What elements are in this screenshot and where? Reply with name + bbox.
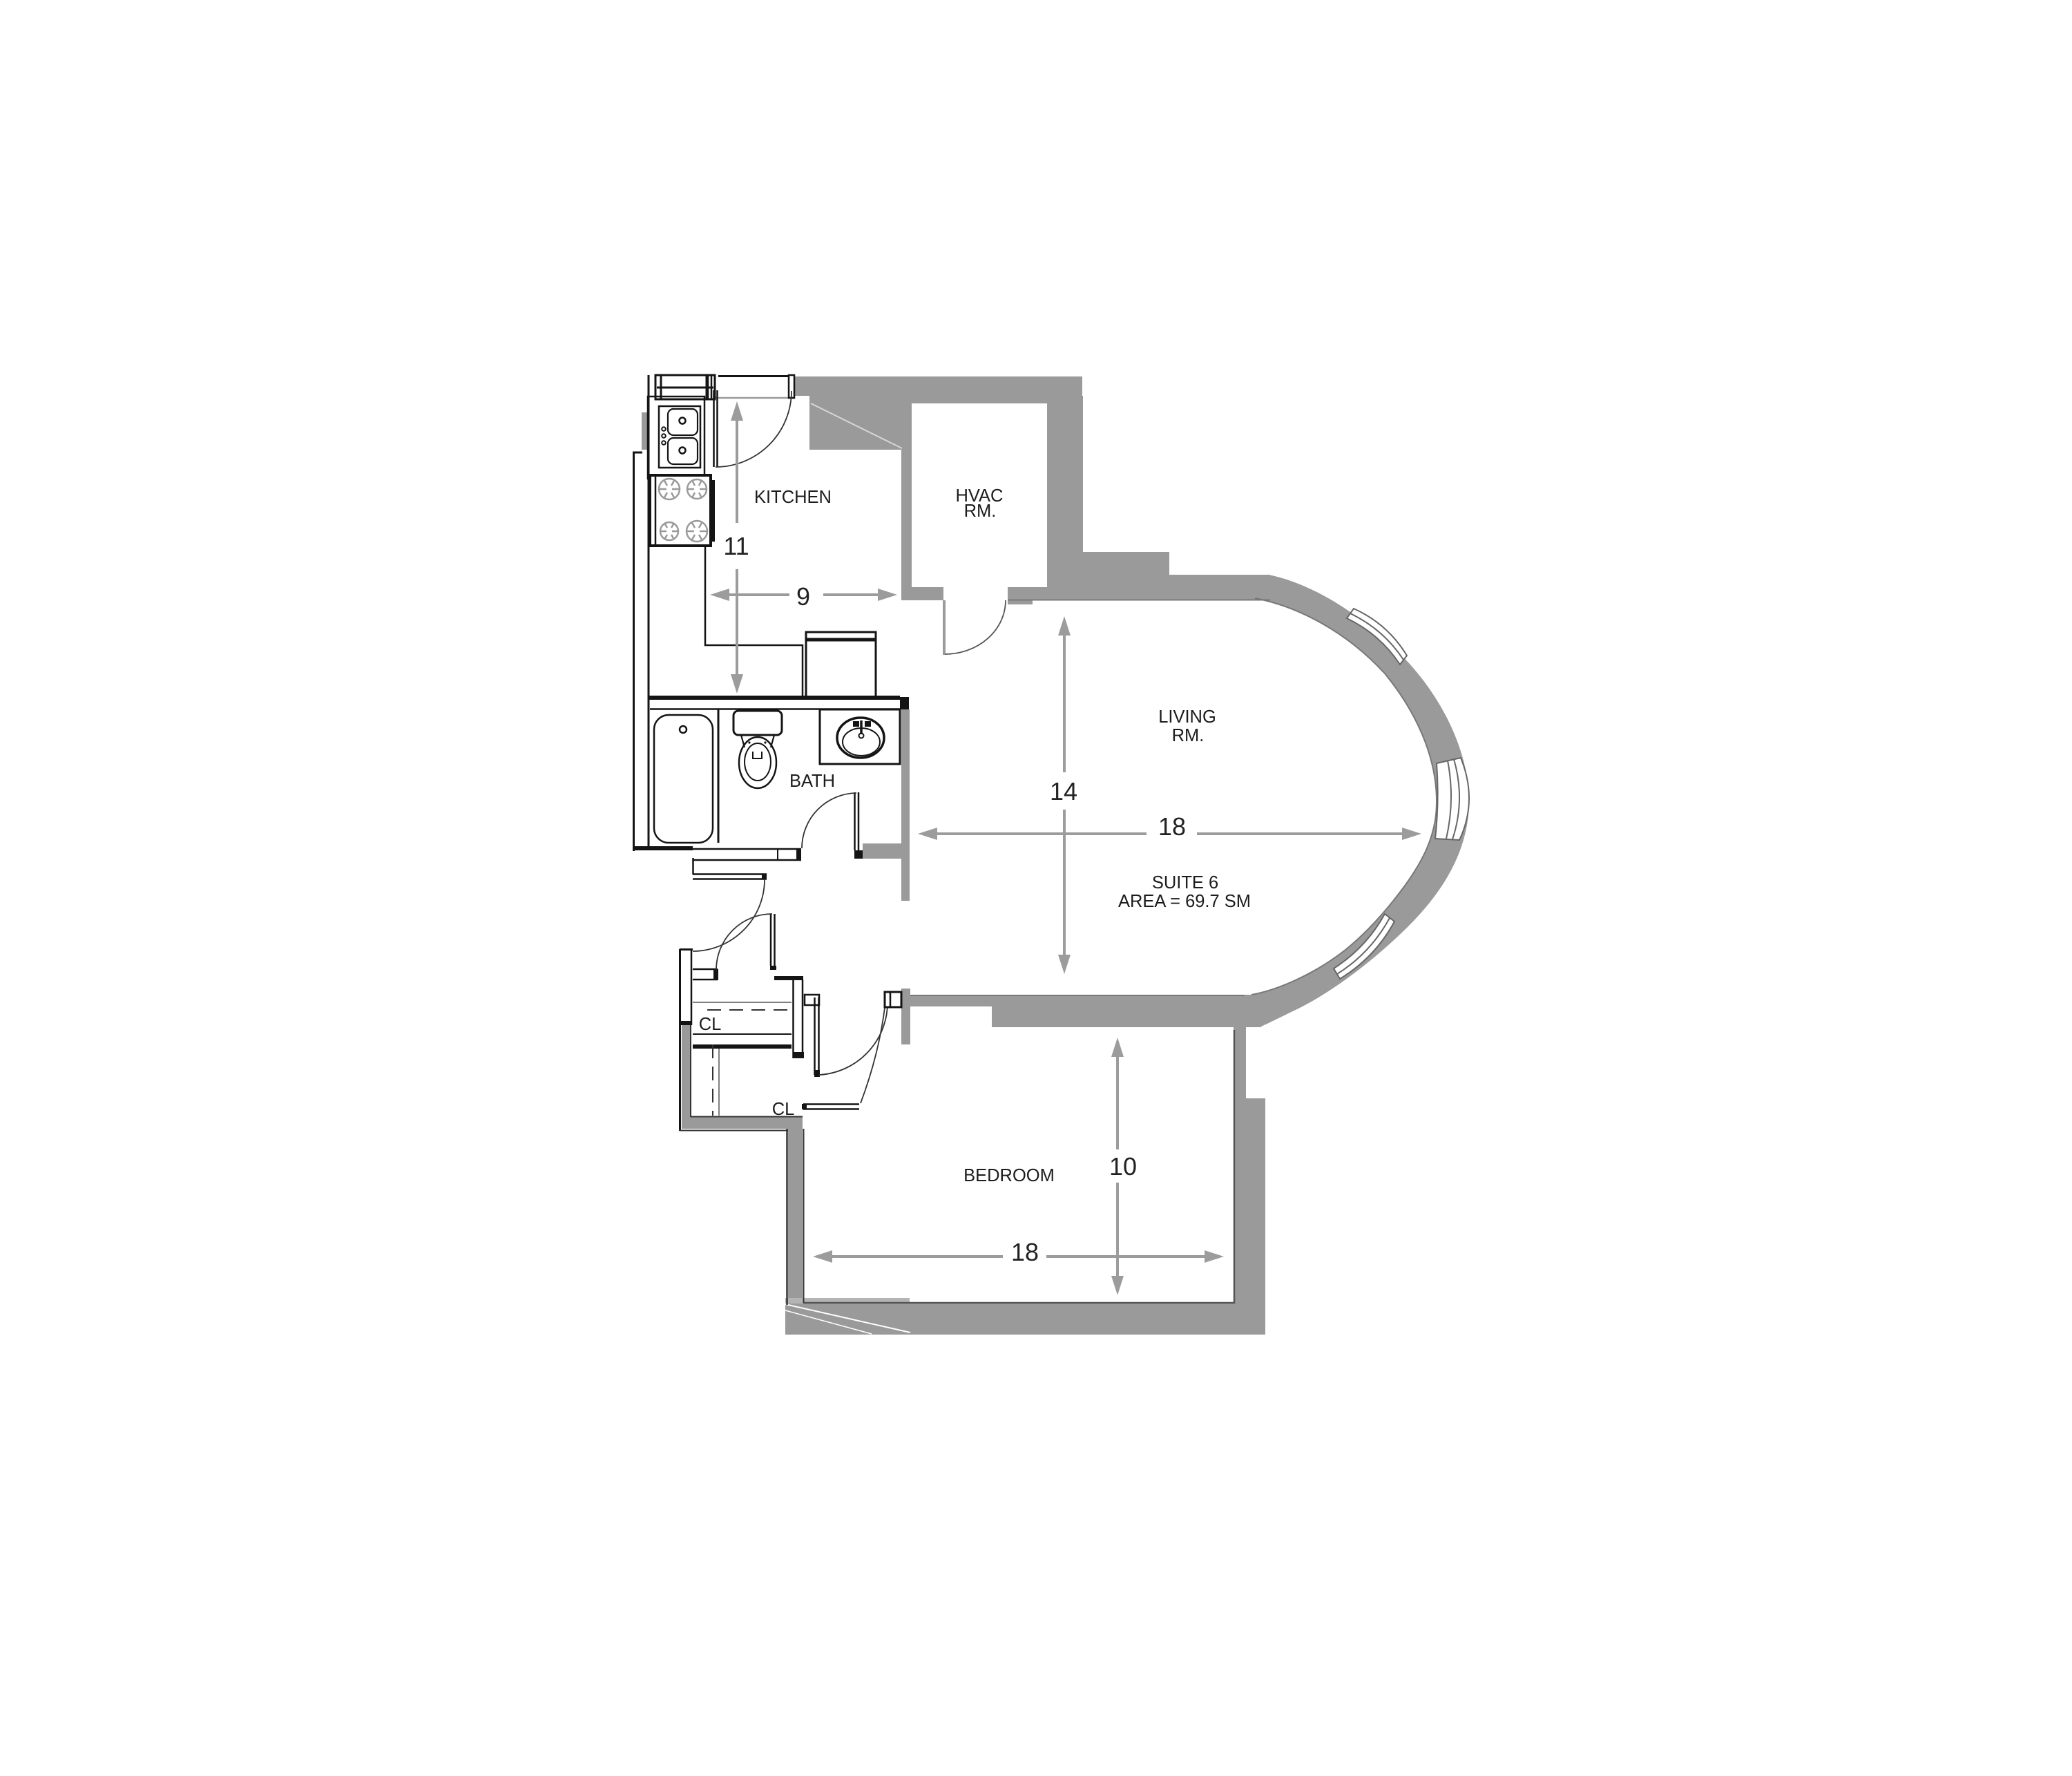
- svg-text:KITCHEN: KITCHEN: [754, 488, 832, 507]
- svg-text:BEDROOM: BEDROOM: [963, 1166, 1055, 1185]
- svg-text:14: 14: [1050, 777, 1077, 805]
- svg-text:18: 18: [1011, 1238, 1039, 1266]
- svg-text:9: 9: [796, 582, 810, 611]
- svg-text:18: 18: [1158, 812, 1186, 841]
- svg-text:CL: CL: [772, 1100, 795, 1119]
- svg-text:11: 11: [723, 532, 749, 560]
- svg-text:CL: CL: [699, 1015, 722, 1034]
- svg-text:BATH: BATH: [789, 772, 835, 791]
- svg-text:RM.: RM.: [964, 502, 997, 521]
- svg-text:AREA = 69.7 SM: AREA = 69.7 SM: [1118, 892, 1251, 911]
- svg-text:RM.: RM.: [1172, 726, 1205, 745]
- svg-text:LIVING: LIVING: [1158, 707, 1216, 727]
- svg-text:SUITE 6: SUITE 6: [1152, 873, 1218, 892]
- svg-text:10: 10: [1109, 1152, 1137, 1181]
